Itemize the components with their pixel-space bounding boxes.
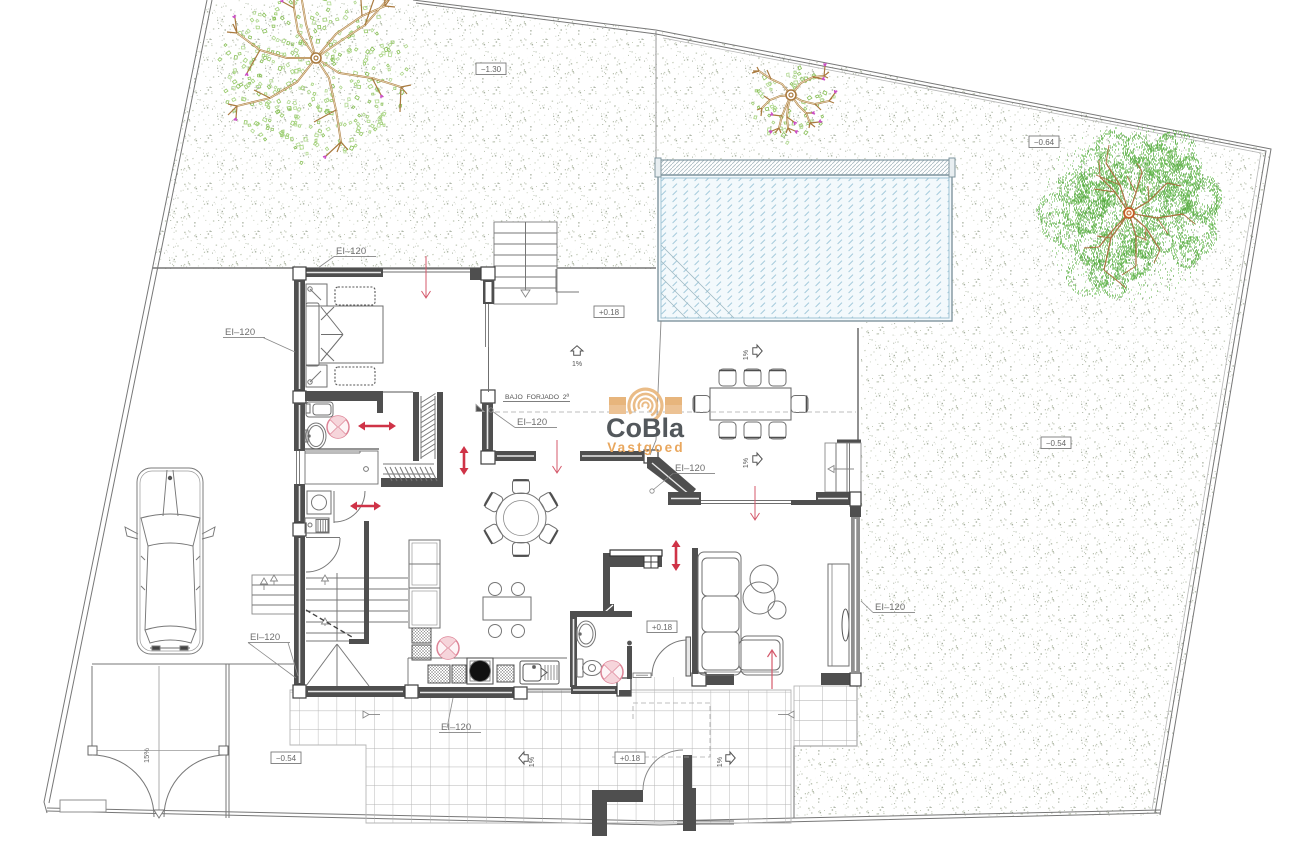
svg-text:EI–120: EI–120 <box>441 722 471 733</box>
svg-text:EI–120: EI–120 <box>250 632 280 643</box>
svg-text:CoBla: CoBla <box>606 413 685 443</box>
svg-text:+0.18: +0.18 <box>652 623 673 632</box>
svg-text:1%: 1% <box>717 757 724 767</box>
svg-text:−0.54: −0.54 <box>276 754 297 763</box>
svg-text:EI–120: EI–120 <box>875 602 905 613</box>
svg-text:−0.64: −0.64 <box>1034 138 1055 147</box>
svg-text:Vastgoed: Vastgoed <box>607 440 685 455</box>
svg-text:−0.54: −0.54 <box>1046 439 1067 448</box>
svg-text:EI–120: EI–120 <box>675 463 705 474</box>
svg-text:EI–120: EI–120 <box>225 327 255 338</box>
svg-text:1%: 1% <box>743 350 750 360</box>
svg-text:1%: 1% <box>743 458 750 468</box>
svg-text:15%: 15% <box>142 748 151 763</box>
svg-text:EI–120: EI–120 <box>336 246 366 257</box>
svg-text:EI–120: EI–120 <box>517 417 547 428</box>
svg-text:−1.30: −1.30 <box>481 65 502 74</box>
svg-text:BAJO FORJADO 2ª: BAJO FORJADO 2ª <box>505 394 570 401</box>
svg-text:1%: 1% <box>572 361 582 368</box>
svg-text:1%: 1% <box>529 757 536 767</box>
svg-text:+0.18: +0.18 <box>599 308 620 317</box>
svg-text:+0.18: +0.18 <box>620 754 641 763</box>
